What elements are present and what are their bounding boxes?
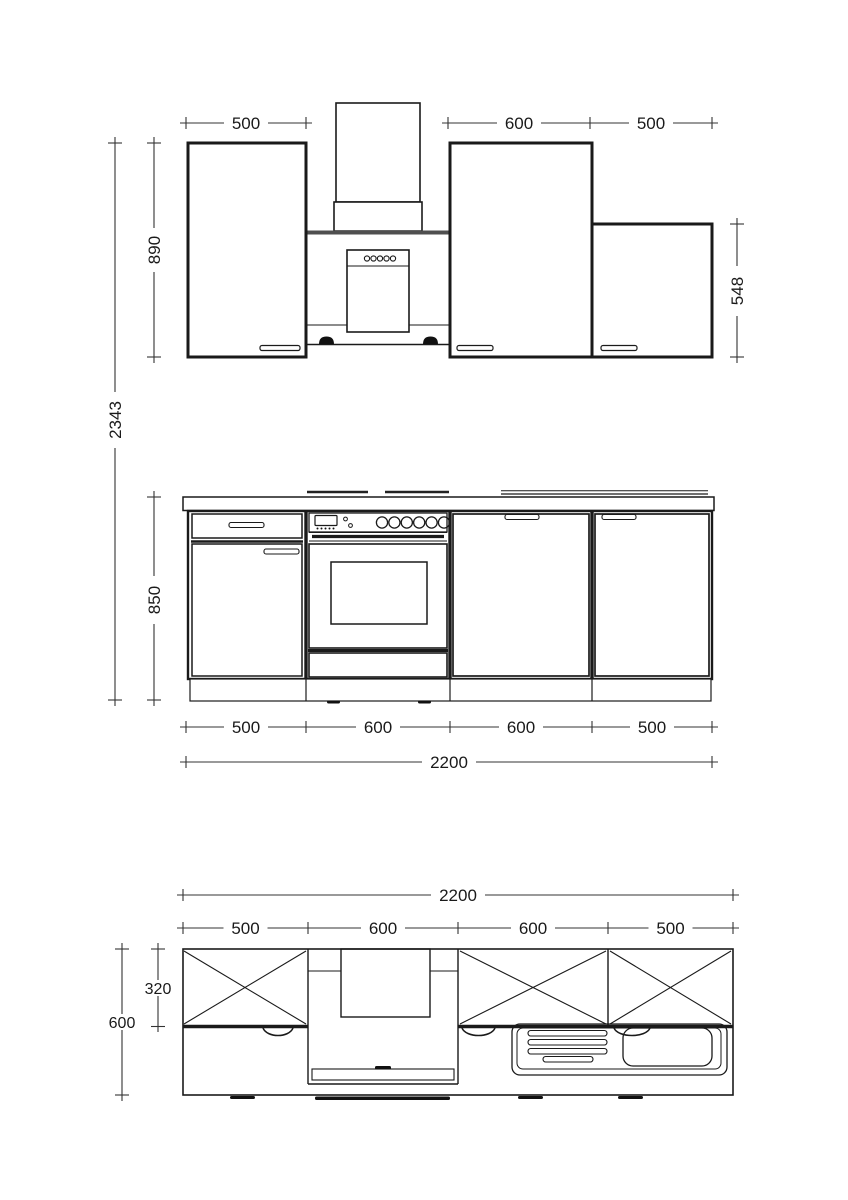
dim-label-plan-w4: 500	[656, 919, 684, 938]
dim-upper-height-548: 548	[728, 218, 747, 363]
dim-plan-total-width: 2200	[177, 886, 739, 905]
wall-cabinet-mid-door	[450, 143, 592, 357]
plinth	[190, 679, 711, 704]
dim-plan-wall-depth-320: 320	[139, 943, 177, 1032]
dim-upper-total-height: 2343	[106, 137, 125, 706]
dim-label-plan-depth: 600	[109, 1015, 136, 1032]
mounting-foot-right	[423, 337, 438, 345]
cooker-backguard	[306, 250, 450, 345]
dim-label-height-548: 548	[728, 277, 747, 305]
dim-label-height-890: 890	[145, 236, 164, 264]
foot-mark	[327, 701, 340, 704]
base-elevation-view: 850 500 600 600 500 2200	[145, 491, 718, 772]
worktop	[183, 497, 714, 511]
dim-label-base-w1: 500	[232, 718, 260, 737]
dim-base-total-width: 2200	[180, 753, 718, 772]
dim-label-plan-w2: 600	[369, 919, 397, 938]
dim-label-plan-total: 2200	[439, 886, 477, 905]
dim-upper-width-left: 500	[180, 114, 312, 133]
dim-upper-width-right: 500	[584, 114, 718, 133]
dim-base-widths: 500 600 600 500	[180, 718, 718, 737]
plan-feet-marks	[230, 1096, 643, 1100]
plan-view: 2200 500 600 600 500 600	[103, 886, 739, 1101]
dim-plan-depth-600: 600	[103, 943, 141, 1101]
dim-label-total-height: 2343	[106, 401, 125, 439]
dim-upper-width-mid: 600	[442, 114, 596, 133]
range-hood	[306, 103, 450, 233]
wall-cabinet-mid	[450, 143, 592, 357]
dim-base-height-850: 850	[145, 491, 164, 706]
dim-label-base-w3: 600	[507, 718, 535, 737]
dim-label-plan-w1: 500	[231, 919, 259, 938]
foot-mark	[418, 701, 431, 704]
dim-label-plan-w3: 600	[519, 919, 547, 938]
dim-label-plan-wall-depth: 320	[145, 981, 172, 998]
wall-cabinet-left	[188, 143, 306, 357]
wall-cabinet-right-door	[592, 224, 712, 357]
wall-cabinet-left-door	[188, 143, 306, 357]
cooker-panel	[347, 250, 409, 332]
drawing-page: 2343 890 548 500	[0, 0, 848, 1200]
dim-label-base-height: 850	[145, 586, 164, 614]
dim-label-upper-width-left: 500	[232, 114, 260, 133]
dim-label-base-w2: 600	[364, 718, 392, 737]
sink-upstand	[501, 491, 708, 494]
dim-label-base-w4: 500	[638, 718, 666, 737]
dim-upper-height-890: 890	[145, 137, 164, 363]
dim-label-upper-width-mid: 600	[505, 114, 533, 133]
mounting-foot-left	[319, 337, 334, 345]
hood-chimney	[336, 103, 420, 202]
dim-label-base-total: 2200	[430, 753, 468, 772]
dim-label-upper-width-right: 500	[637, 114, 665, 133]
dim-plan-widths: 500 600 600 500	[177, 919, 739, 938]
wall-cabinet-right	[592, 224, 712, 357]
kitchen-technical-drawing: 2343 890 548 500	[0, 0, 848, 1200]
hood-canopy	[334, 202, 422, 231]
